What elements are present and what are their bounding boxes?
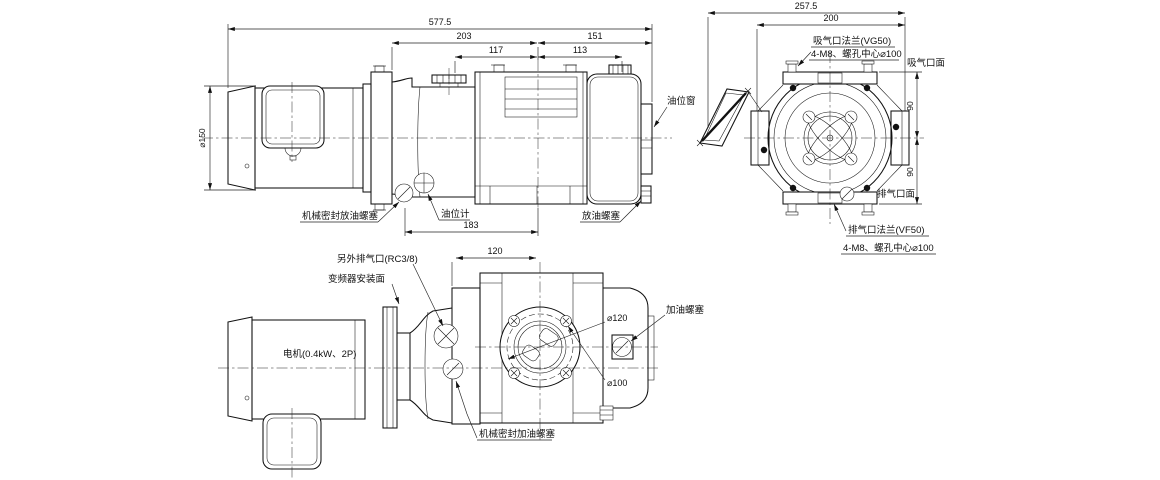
terminal-box <box>262 86 324 148</box>
dim-center-to-exhaust: 90 <box>905 167 915 177</box>
label-oil-level-window: 油位窗 <box>667 95 696 107</box>
dim-motor-diameter: ⌀150 <box>197 128 207 148</box>
dim-overall-depth: 257.5 <box>795 1 818 11</box>
label-oil-drain-plug: 放油螺塞 <box>582 210 621 222</box>
label-exhaust-face: 排气口面 <box>877 188 915 200</box>
dim-rear-section: 113 <box>573 45 587 55</box>
bell-housing-bottom <box>410 400 452 423</box>
label-mech-seal-drain-plug: 机械密封放油螺塞 <box>302 210 379 222</box>
fan-cover-screw <box>245 164 249 168</box>
label-exhaust-flange: 排气口法兰(VF50) <box>848 224 925 236</box>
engineering-drawing: 577.5 203 151 117 113 ⌀150 183 油位窗 机械密封放… <box>0 0 1160 480</box>
oil-tank <box>587 74 641 204</box>
label-exhaust-bolt-circle: 4-M8、螺孔中心⌀100 <box>843 242 934 254</box>
label-suction-flange: 吸气口法兰(VG50) <box>813 35 891 47</box>
dim-body-depth: 200 <box>823 13 838 23</box>
oil-sight-glass <box>641 104 652 174</box>
drawing-canvas: 577.5 203 151 117 113 ⌀150 183 油位窗 机械密封放… <box>0 0 1160 480</box>
dim-base-length: 183 <box>463 220 478 230</box>
dim-suction-to-center: 90 <box>905 101 915 111</box>
end-view: 257.5 200 90 90 吸气口法兰(VG50) 4-M8、螺孔中心⌀10… <box>697 1 945 254</box>
cable-gland <box>285 148 301 156</box>
dim-front-section: 117 <box>489 45 503 55</box>
motor-fan-cover-bottom <box>228 317 252 421</box>
dim-overall-length: 577.5 <box>429 17 452 27</box>
label-inverter-mount-face: 变频器安装面 <box>328 273 385 285</box>
oil-drain-plug-shape <box>641 186 651 203</box>
label-mech-seal-fill-plug: 机械密封加油螺塞 <box>479 428 556 440</box>
dim-pump-section: 203 <box>456 31 471 41</box>
adapter <box>397 333 410 400</box>
label-aux-exhaust-port: 另外排气口(RC3/8) <box>337 253 418 265</box>
pump-body <box>475 72 587 204</box>
bottom-view-labels: 另外排气口(RC3/8) 变频器安装面 电机(0.4kW、2P) 加油螺塞 机械… <box>283 253 705 440</box>
pump-front-section <box>452 288 480 424</box>
label-motor-spec: 电机(0.4kW、2P) <box>283 348 356 360</box>
side-view: 577.5 203 151 117 113 ⌀150 183 油位窗 机械密封放… <box>197 17 696 236</box>
inverter-mount-plate <box>383 307 397 428</box>
oil-fill-plug-side <box>609 65 631 74</box>
label-oil-level-gauge: 油位计 <box>441 208 470 220</box>
lifting-bolt <box>566 65 576 72</box>
dim-port-offset: 120 <box>487 246 502 256</box>
dim-bolt-circle: ⌀100 <box>607 378 627 388</box>
lifting-bolt <box>494 65 504 72</box>
bottom-view: 120 ⌀120 ⌀100 另外排气口(RC3/8) 变频器安装面 电机(0.4… <box>218 246 705 478</box>
label-suction-bolt-circle: 4-M8、螺孔中心⌀100 <box>811 48 902 60</box>
muffler-box <box>505 77 577 117</box>
label-oil-fill-plug: 加油螺塞 <box>666 304 705 316</box>
dim-flange-diameter: ⌀120 <box>607 313 627 323</box>
bottom-plug <box>600 406 613 420</box>
motor-body-bottom <box>252 320 365 419</box>
dim-tank-section: 151 <box>587 31 602 41</box>
label-suction-face: 吸气口面 <box>907 57 945 69</box>
